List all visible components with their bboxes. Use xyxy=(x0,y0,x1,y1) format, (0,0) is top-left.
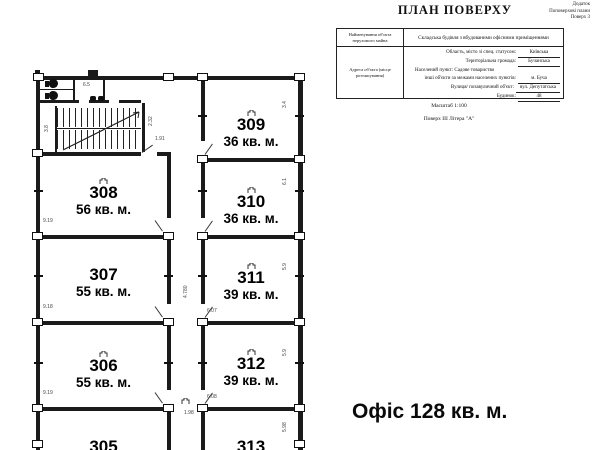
corner-note: Додаток Поповерхові плани Поверх 3 xyxy=(460,2,590,22)
column-marker xyxy=(32,149,43,157)
floor-plan-page: ПЛАН ПОВЕРХУ Додаток Поповерхові плани П… xyxy=(0,0,600,450)
wall-310-311 xyxy=(204,235,299,239)
office-area-label: Офіс 128 кв. м. xyxy=(352,400,562,424)
dimension-label: 6.08 xyxy=(207,394,217,400)
door-leaf xyxy=(155,392,163,403)
address-label: Адреса об'єкта (місце розташування) xyxy=(337,47,404,98)
room-number: 307 xyxy=(40,266,167,284)
corner-note-line: Поверх 3 xyxy=(460,15,590,22)
column-marker xyxy=(197,404,208,412)
dimension-label: 6.07 xyxy=(207,308,217,314)
column-marker xyxy=(294,73,305,81)
door-gap-306 xyxy=(167,390,171,405)
address-region-value: Київська xyxy=(518,49,560,58)
wall-306-305 xyxy=(38,407,169,411)
door-leaf xyxy=(155,220,163,231)
wall-left-outer xyxy=(36,76,40,450)
corridor-marker-icon xyxy=(181,398,190,404)
room-number: 311 xyxy=(204,269,298,287)
dimension-label: 1.91 xyxy=(155,136,165,142)
room-area: 55 кв. м. xyxy=(40,375,167,390)
column-marker xyxy=(163,73,174,81)
dimension-label: 3.8 xyxy=(44,125,50,132)
room-number: 305 xyxy=(40,438,167,450)
column-marker xyxy=(294,318,305,326)
column-marker xyxy=(32,232,43,240)
address-value: Область, місто зі спец. статусом: Київсь… xyxy=(404,47,563,98)
address-street-value: вул. Депутатська xyxy=(516,84,560,93)
room-area: 55 кв. м. xyxy=(40,284,167,299)
room-number: 312 xyxy=(204,355,298,373)
dimension-label: 1.98 xyxy=(184,410,194,416)
dimension-label: 6.5 xyxy=(83,82,90,88)
stair-direction-arrow xyxy=(55,104,147,154)
room-label-313: 313 xyxy=(204,438,298,450)
door-gap-wc-1 xyxy=(79,100,89,103)
address-line-settlement: Населений пункт: Садове товариство xyxy=(407,67,560,75)
column-marker xyxy=(163,318,174,326)
room-label-308: 308 56 кв. м. xyxy=(40,178,167,217)
toilet-icon xyxy=(45,91,58,100)
column-marker xyxy=(197,232,208,240)
dimension-label: 4.780 xyxy=(183,285,189,298)
address-line-community: Територіальна громада: Бучанська xyxy=(407,58,560,67)
dimension-label: 9.19 xyxy=(43,390,53,396)
door-gap-wc-2 xyxy=(109,100,119,103)
wall-309-310 xyxy=(204,158,299,162)
room-area: 39 кв. м. xyxy=(204,373,298,388)
column-marker xyxy=(294,404,305,412)
wall-wc-bottom xyxy=(38,100,141,103)
scale-label: Масштаб 1:100 xyxy=(336,103,562,109)
room-number: 308 xyxy=(40,184,167,202)
room-number: 309 xyxy=(204,116,298,134)
address-line-outside: інші об'єкти за межами населених пунктів… xyxy=(407,75,560,84)
wall-308-307 xyxy=(38,235,169,239)
room-area: 39 кв. м. xyxy=(204,287,298,302)
dimension-label: 6.1 xyxy=(282,178,288,185)
wall-311-312 xyxy=(204,321,299,325)
floor-plan-drawing: 308 56 кв. м. 307 55 кв. м. 306 55 кв. м… xyxy=(35,70,307,450)
wall-312-313 xyxy=(204,407,299,411)
room-number: 313 xyxy=(204,438,298,450)
room-label-310: 310 36 кв. м. xyxy=(204,187,298,226)
room-number: 306 xyxy=(40,357,167,375)
door-gap-308 xyxy=(167,218,171,233)
dimension-label: 5.9 xyxy=(282,349,288,356)
column-marker xyxy=(33,73,44,81)
column-marker xyxy=(163,404,174,412)
column-marker xyxy=(294,232,305,240)
address-line-building: Будинок: 48 xyxy=(407,93,560,102)
address-outside-value: м. Буча xyxy=(518,75,560,84)
room-label-309: 309 36 кв. м. xyxy=(204,110,298,149)
door-gap-307 xyxy=(167,304,171,319)
dimension-label: 3.4 xyxy=(282,101,288,108)
toilet-icon xyxy=(45,79,58,88)
dimension-label: 9.19 xyxy=(43,218,53,224)
door-leaf xyxy=(155,306,163,317)
door-gap-hall xyxy=(141,152,157,156)
room-area: 36 кв. м. xyxy=(204,134,298,149)
address-community-value: Бучанська xyxy=(518,58,560,67)
address-line-street: Вулиця/ позавуличний об'єкт: вул. Депута… xyxy=(407,84,560,93)
shaft-box xyxy=(88,70,98,77)
wall-307-306 xyxy=(38,321,169,325)
wall-wc-stall-divider xyxy=(38,89,73,91)
column-marker xyxy=(32,404,43,412)
room-number: 310 xyxy=(204,193,298,211)
column-marker xyxy=(197,318,208,326)
object-name-label: Найменування об'єкта нерухомого майна xyxy=(337,29,404,46)
wall-wc-divider-1 xyxy=(73,79,75,101)
wall-right-outer xyxy=(298,76,303,450)
column-marker xyxy=(32,318,43,326)
object-info-table: Найменування об'єкта нерухомого майна Ск… xyxy=(336,28,564,99)
dimension-label: 2.32 xyxy=(148,116,154,126)
floor-letter-label: Поверх ІІІ Літера "А" xyxy=(336,116,562,122)
sink-icon xyxy=(90,96,96,101)
object-name-value: Складська будівля з вбудованими офісними… xyxy=(404,29,563,46)
address-line-region: Область, місто зі спец. статусом: Київсь… xyxy=(407,49,560,58)
column-marker xyxy=(197,73,208,81)
sink-icon xyxy=(98,96,104,101)
room-label-305: 305 xyxy=(40,438,167,450)
dimension-label: 5.9 xyxy=(282,263,288,270)
room-area: 56 кв. м. xyxy=(40,202,167,217)
column-marker xyxy=(197,155,208,163)
room-label-306: 306 55 кв. м. xyxy=(40,351,167,390)
dimension-label: 5.98 xyxy=(282,422,288,432)
address-building-value: 48 xyxy=(518,93,560,102)
dimension-label: 9.18 xyxy=(43,304,53,310)
room-label-307: 307 55 кв. м. xyxy=(40,266,167,299)
room-area: 36 кв. м. xyxy=(204,211,298,226)
column-marker xyxy=(163,232,174,240)
column-marker xyxy=(294,155,305,163)
